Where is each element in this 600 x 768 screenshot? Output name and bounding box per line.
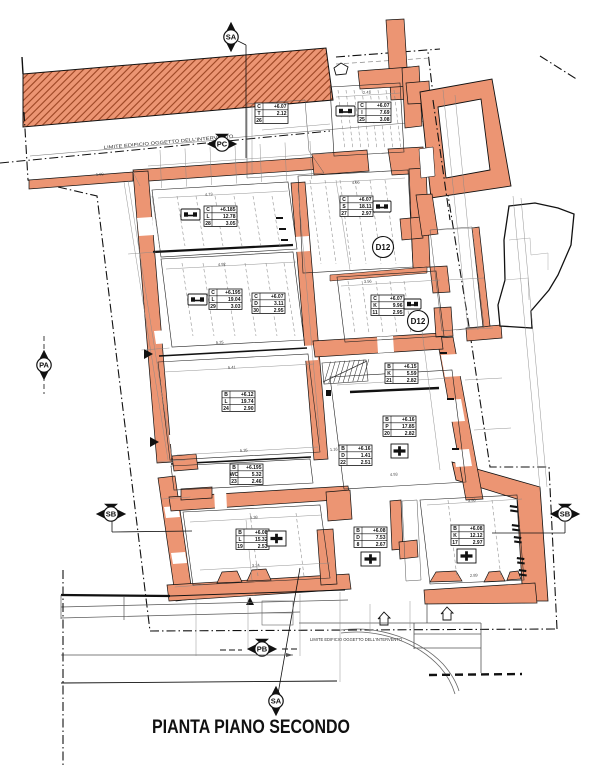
svg-text:B: B <box>238 530 242 536</box>
svg-text:SB: SB <box>106 510 117 519</box>
svg-text:18.11: 18.11 <box>359 204 371 210</box>
svg-text:C: C <box>373 296 377 302</box>
svg-text:C: C <box>206 207 210 213</box>
svg-text:3.86: 3.86 <box>468 497 477 503</box>
svg-text:4.73: 4.73 <box>205 191 214 197</box>
svg-text:B: B <box>356 528 360 534</box>
svg-text:L: L <box>224 399 227 405</box>
svg-text:3.08: 3.08 <box>380 117 390 123</box>
svg-text:28: 28 <box>205 221 211 227</box>
svg-text:5.25: 5.25 <box>216 339 225 345</box>
svg-text:C: C <box>342 197 346 203</box>
svg-text:B: B <box>341 446 345 452</box>
svg-text:1.16: 1.16 <box>330 446 339 452</box>
svg-text:+6.08: +6.08 <box>255 530 268 536</box>
svg-text:K: K <box>387 371 391 377</box>
svg-text:B: B <box>224 392 228 398</box>
svg-text:2.53: 2.53 <box>258 544 268 550</box>
svg-text:25: 25 <box>359 117 365 123</box>
svg-text:2.12: 2.12 <box>277 111 287 117</box>
svg-text:+6.07: +6.07 <box>271 294 284 300</box>
svg-text:WC: WC <box>230 472 239 478</box>
svg-text:5.38: 5.38 <box>250 514 259 520</box>
svg-text:+6.16: +6.16 <box>402 417 415 423</box>
svg-text:2.82: 2.82 <box>405 431 415 437</box>
svg-text:3.24: 3.24 <box>252 562 261 568</box>
svg-text:15.32: 15.32 <box>255 537 268 543</box>
svg-text:L: L <box>238 537 241 543</box>
svg-text:22: 22 <box>340 460 346 466</box>
svg-text:LIMITE EDIFICIO OGGETTO DELL'I: LIMITE EDIFICIO OGGETTO DELL'INTERVENTO <box>310 637 403 642</box>
svg-text:+6.16: +6.16 <box>358 446 371 452</box>
svg-text:4.66: 4.66 <box>352 179 361 185</box>
svg-text:D: D <box>356 535 360 541</box>
svg-text:17.85: 17.85 <box>402 424 415 430</box>
svg-text:27: 27 <box>341 211 347 217</box>
svg-text:C: C <box>257 104 261 110</box>
svg-text:2.95: 2.95 <box>274 308 284 314</box>
svg-text:2.90: 2.90 <box>244 406 254 412</box>
svg-text:+6.185: +6.185 <box>220 207 236 213</box>
svg-text:+6.12: +6.12 <box>241 392 254 398</box>
svg-text:5.41: 5.41 <box>228 364 237 370</box>
svg-text:24: 24 <box>223 406 229 412</box>
svg-text:SB: SB <box>560 510 571 519</box>
svg-text:4.92: 4.92 <box>218 261 227 267</box>
svg-text:+6.07: +6.07 <box>359 197 372 203</box>
svg-text:9.96: 9.96 <box>393 303 403 309</box>
svg-text:D12: D12 <box>411 317 426 326</box>
svg-text:K: K <box>453 533 457 539</box>
svg-text:2.46: 2.46 <box>252 479 262 485</box>
svg-text:2.95: 2.95 <box>393 310 403 316</box>
svg-text:SA: SA <box>271 697 282 706</box>
svg-text:L: L <box>206 214 209 220</box>
svg-text:+6.08: +6.08 <box>373 528 386 534</box>
svg-text:29: 29 <box>210 304 216 310</box>
svg-text:2.82: 2.82 <box>407 378 417 384</box>
svg-text:19: 19 <box>237 544 243 550</box>
svg-text:3.05: 3.05 <box>226 221 236 227</box>
svg-text:3.11: 3.11 <box>274 301 284 307</box>
svg-text:4.93: 4.93 <box>390 471 399 477</box>
svg-text:2.51: 2.51 <box>361 460 371 466</box>
svg-text:+6.195: +6.195 <box>225 290 241 296</box>
svg-text:3.03: 3.03 <box>231 304 241 310</box>
svg-text:7.69: 7.69 <box>380 110 390 116</box>
svg-text:T: T <box>257 111 260 117</box>
svg-text:1.41: 1.41 <box>361 453 371 459</box>
svg-text:12.12: 12.12 <box>470 533 483 539</box>
svg-text:B: B <box>453 526 457 532</box>
svg-text:K: K <box>373 303 377 309</box>
svg-text:PA: PA <box>39 361 49 370</box>
svg-text:21: 21 <box>386 378 392 384</box>
svg-text:2.89: 2.89 <box>470 572 479 578</box>
svg-text:+6.07: +6.07 <box>377 103 390 109</box>
svg-text:5.32: 5.32 <box>252 472 262 478</box>
svg-text:19.74: 19.74 <box>241 399 254 405</box>
svg-text:+6.195: +6.195 <box>246 465 262 471</box>
svg-text:2.97: 2.97 <box>473 540 483 546</box>
svg-text:5.35: 5.35 <box>240 447 249 453</box>
svg-text:D: D <box>341 453 345 459</box>
svg-text:SA: SA <box>226 33 237 42</box>
svg-text:B: B <box>232 465 236 471</box>
svg-text:12.78: 12.78 <box>223 214 236 220</box>
svg-text:D12: D12 <box>376 243 391 252</box>
svg-text:C: C <box>360 103 364 109</box>
svg-text:5.59: 5.59 <box>407 371 417 377</box>
svg-text:L: L <box>211 297 214 303</box>
svg-text:11: 11 <box>372 310 378 316</box>
svg-text:2.67: 2.67 <box>376 542 386 548</box>
svg-text:B: B <box>385 417 389 423</box>
svg-text:20: 20 <box>384 431 390 437</box>
svg-text:19.04: 19.04 <box>228 297 241 303</box>
svg-text:1.90: 1.90 <box>96 171 105 177</box>
svg-text:PB: PB <box>257 645 268 654</box>
svg-text:23: 23 <box>231 479 237 485</box>
svg-text:2.97: 2.97 <box>362 211 372 217</box>
svg-text:C: C <box>211 290 215 296</box>
svg-text:D: D <box>254 301 258 307</box>
svg-text:PIANTA PIANO SECONDO: PIANTA PIANO SECONDO <box>152 716 350 738</box>
svg-text:2.41: 2.41 <box>363 89 372 95</box>
svg-text:8: 8 <box>357 542 360 548</box>
svg-text:7.53: 7.53 <box>376 535 386 541</box>
svg-text:17: 17 <box>452 540 458 546</box>
svg-text:+6.07: +6.07 <box>274 104 287 110</box>
svg-text:B: B <box>387 364 391 370</box>
svg-text:26: 26 <box>256 118 262 124</box>
svg-text:+6.15: +6.15 <box>404 364 417 370</box>
svg-text:PC: PC <box>217 140 228 149</box>
svg-text:3.56: 3.56 <box>364 278 373 284</box>
svg-text:C: C <box>254 294 258 300</box>
svg-text:30: 30 <box>253 308 259 314</box>
svg-text:+6.07: +6.07 <box>390 296 403 302</box>
svg-text:+6.08: +6.08 <box>470 526 483 532</box>
